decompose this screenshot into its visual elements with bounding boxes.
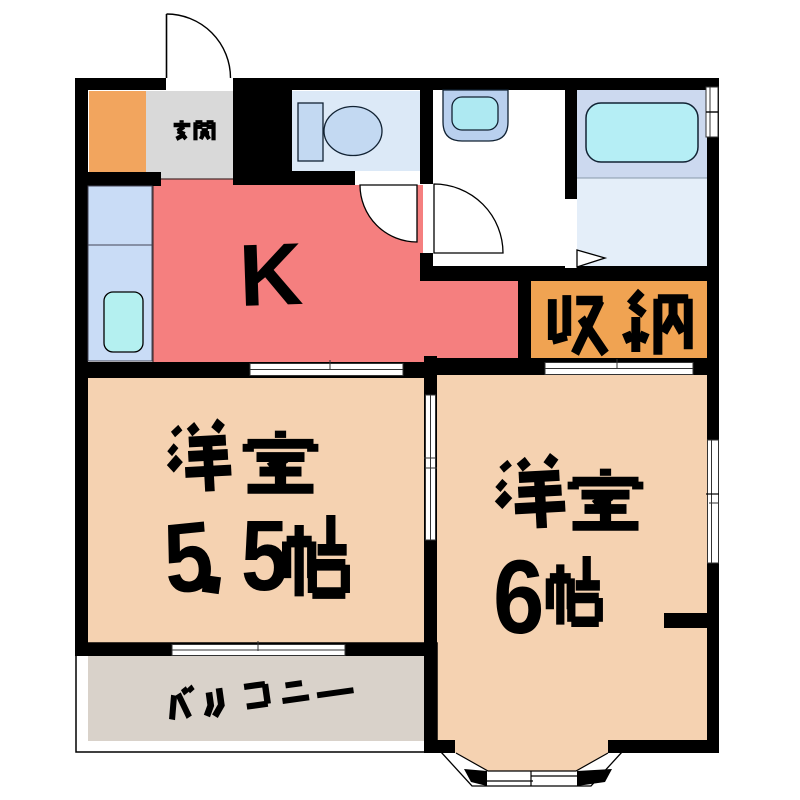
svg-text:6: 6 [493, 537, 544, 655]
svg-text:5: 5 [241, 499, 288, 611]
svg-text:5: 5 [160, 500, 217, 615]
svg-text:K: K [237, 224, 304, 325]
